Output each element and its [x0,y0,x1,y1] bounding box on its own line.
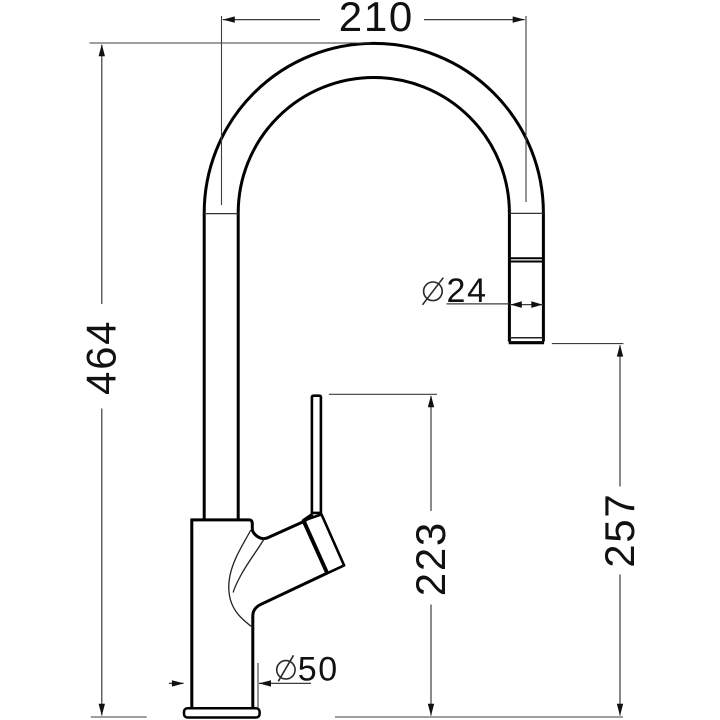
svg-text:464: 464 [78,320,125,395]
svg-text:257: 257 [596,493,643,568]
svg-text:223: 223 [407,521,454,596]
svg-text:210: 210 [339,0,414,40]
